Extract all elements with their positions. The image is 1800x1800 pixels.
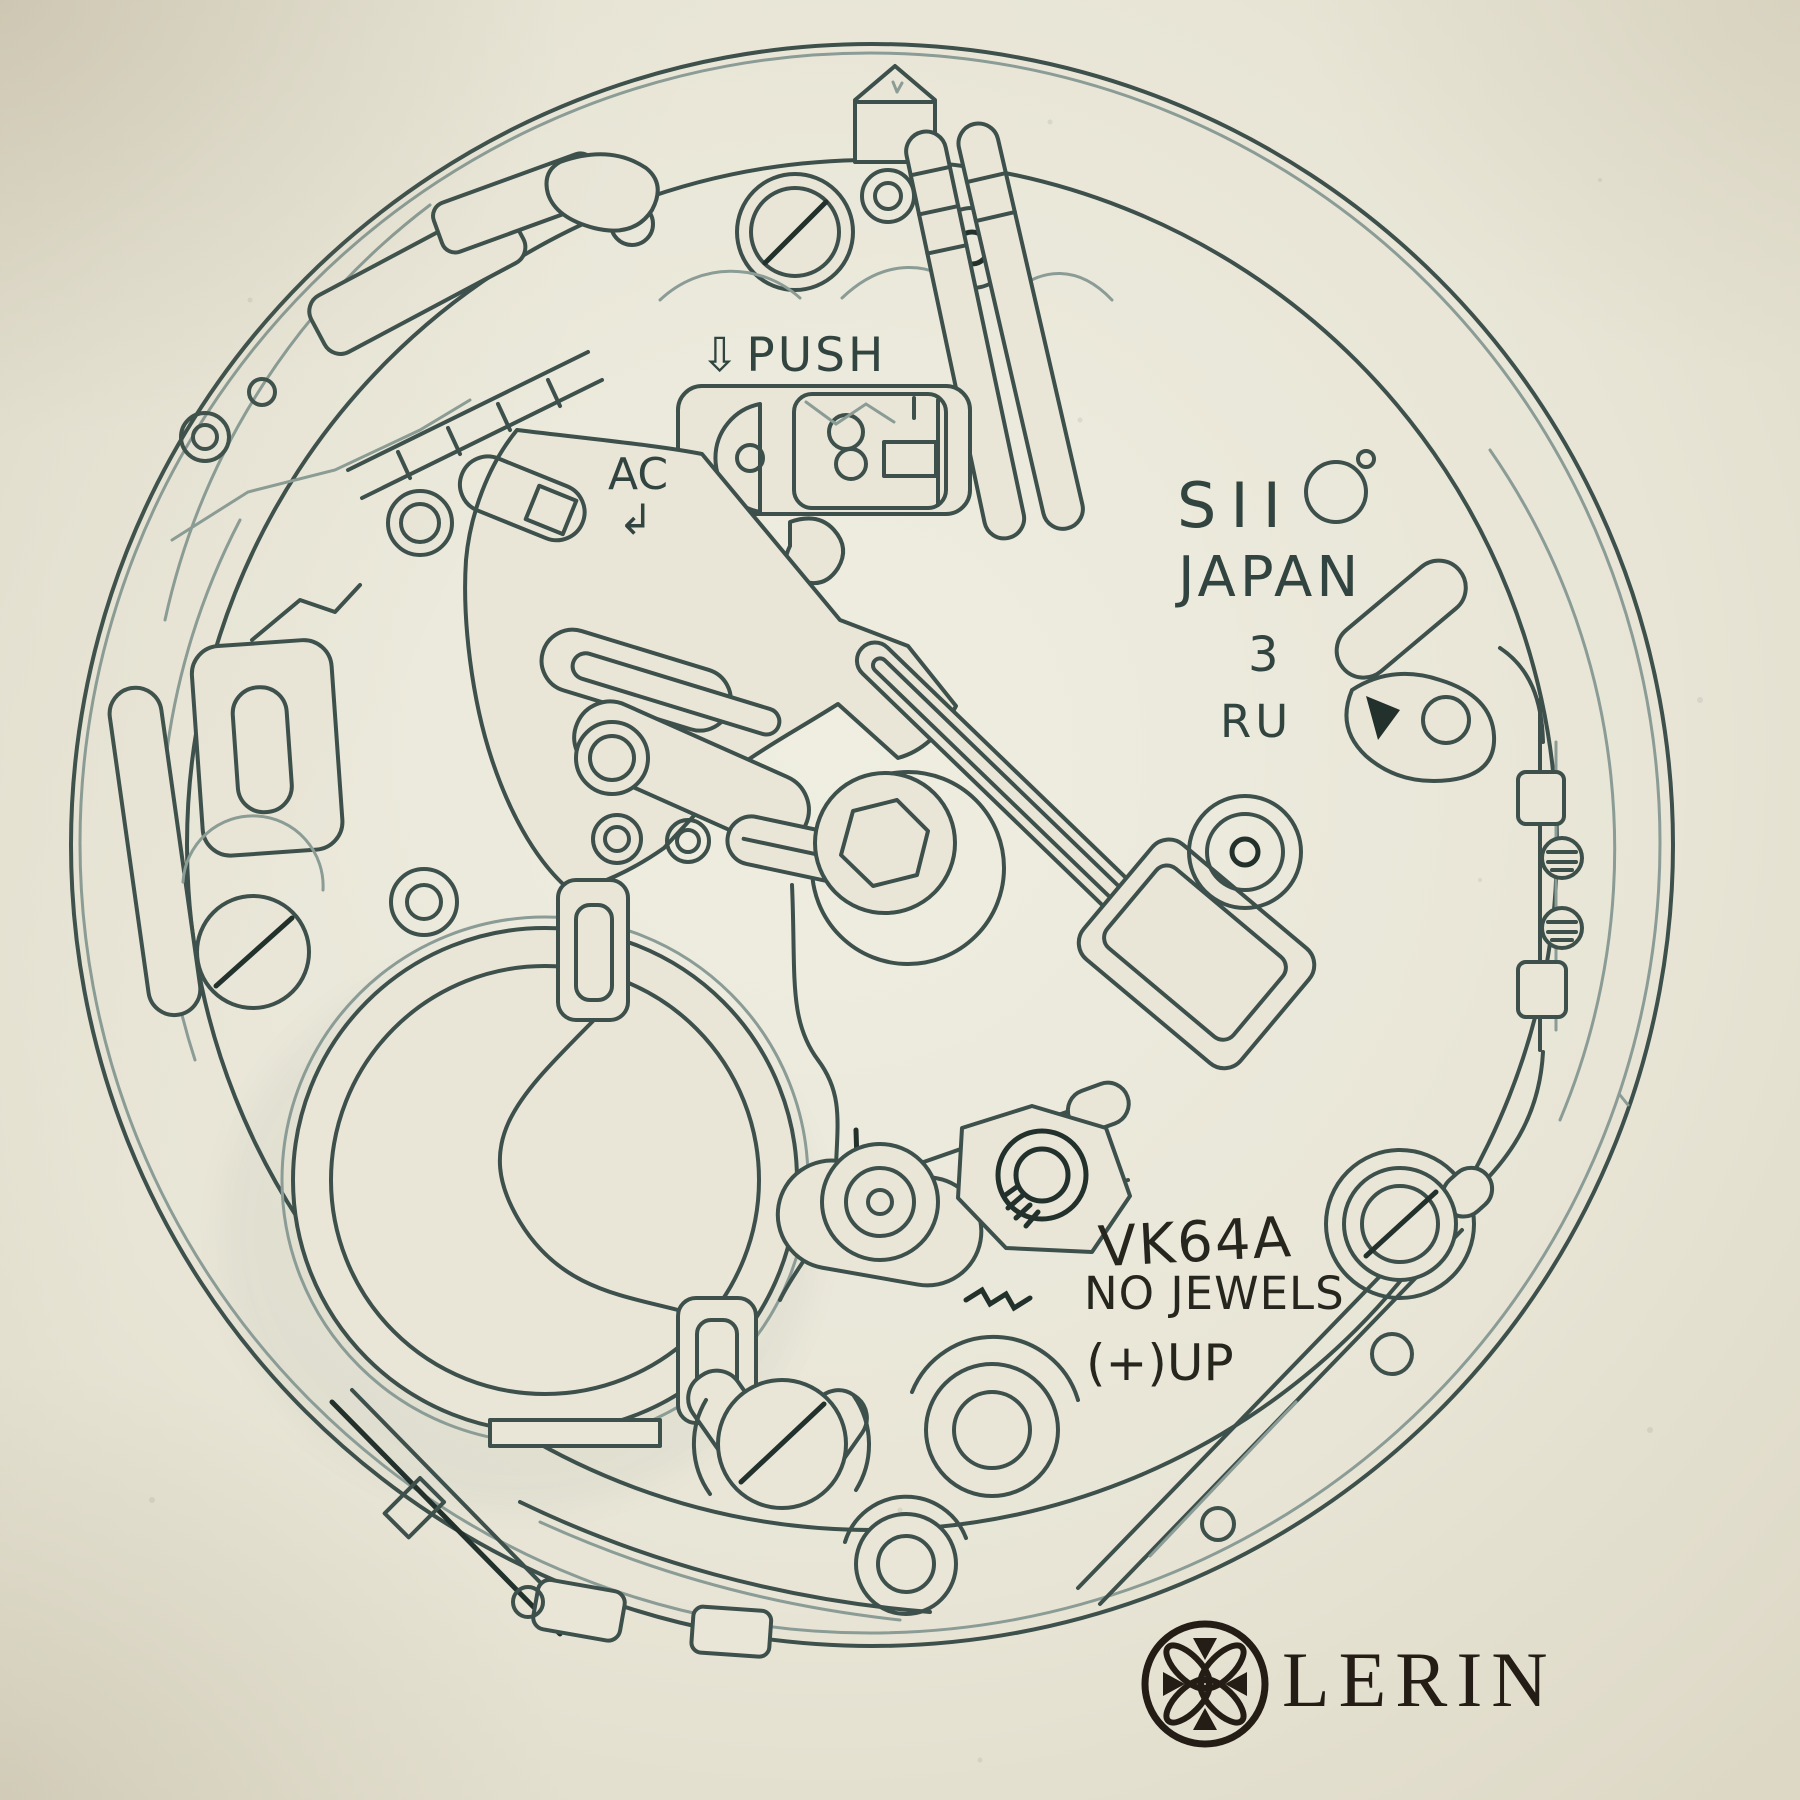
push-arrow-icon: ⇩ [700,328,742,383]
battery-orientation-label: (+)UP [1086,1334,1234,1392]
brand-label: SII [1177,469,1295,542]
signature-brand: LERIN [1282,1636,1557,1723]
country-label: JAPAN [1175,545,1362,610]
ac-label: AC [608,449,668,500]
ac-arrow-icon: ↲ [618,495,653,544]
jewels-label: NO JEWELS [1084,1267,1345,1320]
date-position-label: 3 [1248,627,1279,683]
push-label: ⇩PUSH [700,328,886,383]
watch-movement-drawing: ⇩PUSH AC ↲ SII JAPAN 3 RU VK64A NO JEWEL… [0,0,1800,1800]
sketch-page: ⇩PUSH AC ↲ SII JAPAN 3 RU VK64A NO JEWEL… [0,0,1800,1800]
ru-label: RU [1220,695,1292,748]
